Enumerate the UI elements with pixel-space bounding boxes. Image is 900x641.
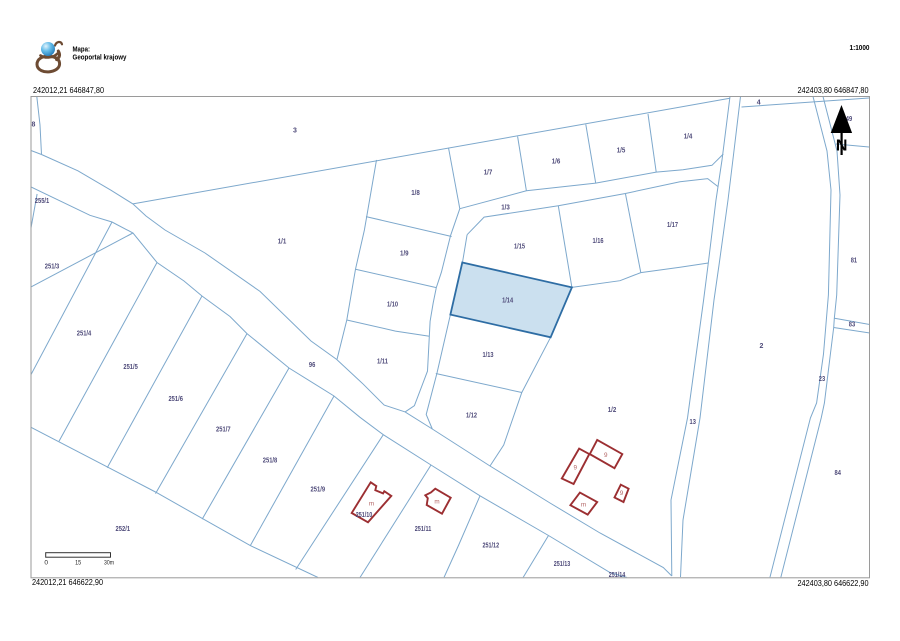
svg-text:1/14: 1/14 (502, 297, 513, 304)
svg-text:255/1: 255/1 (35, 198, 50, 205)
svg-text:1/9: 1/9 (400, 251, 409, 258)
svg-text:1/13: 1/13 (483, 352, 494, 359)
svg-text:3: 3 (293, 128, 297, 135)
svg-text:9: 9 (573, 465, 577, 472)
svg-text:96: 96 (309, 362, 315, 369)
svg-text:30m: 30m (104, 560, 114, 567)
svg-text:251/6: 251/6 (168, 396, 183, 403)
svg-text:1:1000: 1:1000 (850, 43, 870, 52)
svg-text:m: m (369, 501, 374, 508)
svg-text:252/1: 252/1 (116, 526, 131, 533)
svg-text:1/15: 1/15 (514, 244, 525, 251)
svg-text:1/4: 1/4 (684, 134, 693, 141)
svg-text:8: 8 (32, 122, 36, 129)
svg-text:251/5: 251/5 (123, 364, 138, 371)
svg-text:1/2: 1/2 (608, 407, 617, 414)
svg-text:1/8: 1/8 (411, 190, 420, 197)
svg-text:1/16: 1/16 (593, 238, 604, 245)
svg-text:242403,80 646622,90: 242403,80 646622,90 (798, 579, 869, 588)
svg-text:1/7: 1/7 (484, 170, 493, 177)
svg-text:Geoportal krajowy: Geoportal krajowy (73, 53, 128, 62)
svg-text:1/12: 1/12 (466, 413, 477, 420)
svg-text:84: 84 (835, 470, 841, 477)
svg-text:242403,80 646847,80: 242403,80 646847,80 (798, 86, 869, 95)
svg-text:15: 15 (75, 560, 81, 567)
svg-text:251/3: 251/3 (45, 264, 60, 271)
svg-text:251/8: 251/8 (263, 458, 278, 465)
svg-text:m: m (581, 502, 586, 509)
svg-text:251/12: 251/12 (483, 542, 500, 549)
svg-text:1/3: 1/3 (501, 205, 510, 212)
svg-text:1/6: 1/6 (552, 159, 561, 166)
svg-text:9: 9 (604, 452, 608, 459)
svg-text:9: 9 (620, 490, 624, 497)
svg-text:1/11: 1/11 (377, 359, 388, 366)
svg-text:251/11: 251/11 (415, 526, 432, 533)
svg-text:251/13: 251/13 (554, 561, 571, 568)
svg-text:13: 13 (690, 419, 696, 426)
svg-text:4: 4 (757, 100, 761, 107)
svg-text:251/10: 251/10 (356, 512, 373, 519)
svg-text:251/4: 251/4 (77, 331, 92, 338)
svg-text:1/17: 1/17 (667, 222, 678, 229)
svg-text:1/5: 1/5 (617, 148, 626, 155)
svg-text:242012,21 646622,90: 242012,21 646622,90 (32, 578, 103, 587)
svg-text:251/7: 251/7 (216, 426, 231, 433)
svg-text:1/1: 1/1 (278, 239, 287, 246)
svg-text:2: 2 (760, 343, 764, 350)
svg-text:1/10: 1/10 (387, 302, 398, 309)
svg-text:23: 23 (819, 376, 825, 383)
svg-text:251/9: 251/9 (311, 486, 326, 493)
svg-text:m: m (434, 499, 439, 506)
svg-text:242012,21 646847,80: 242012,21 646847,80 (33, 86, 104, 95)
svg-text:0: 0 (44, 560, 48, 567)
svg-text:81: 81 (851, 258, 857, 265)
svg-text:83: 83 (849, 322, 855, 329)
